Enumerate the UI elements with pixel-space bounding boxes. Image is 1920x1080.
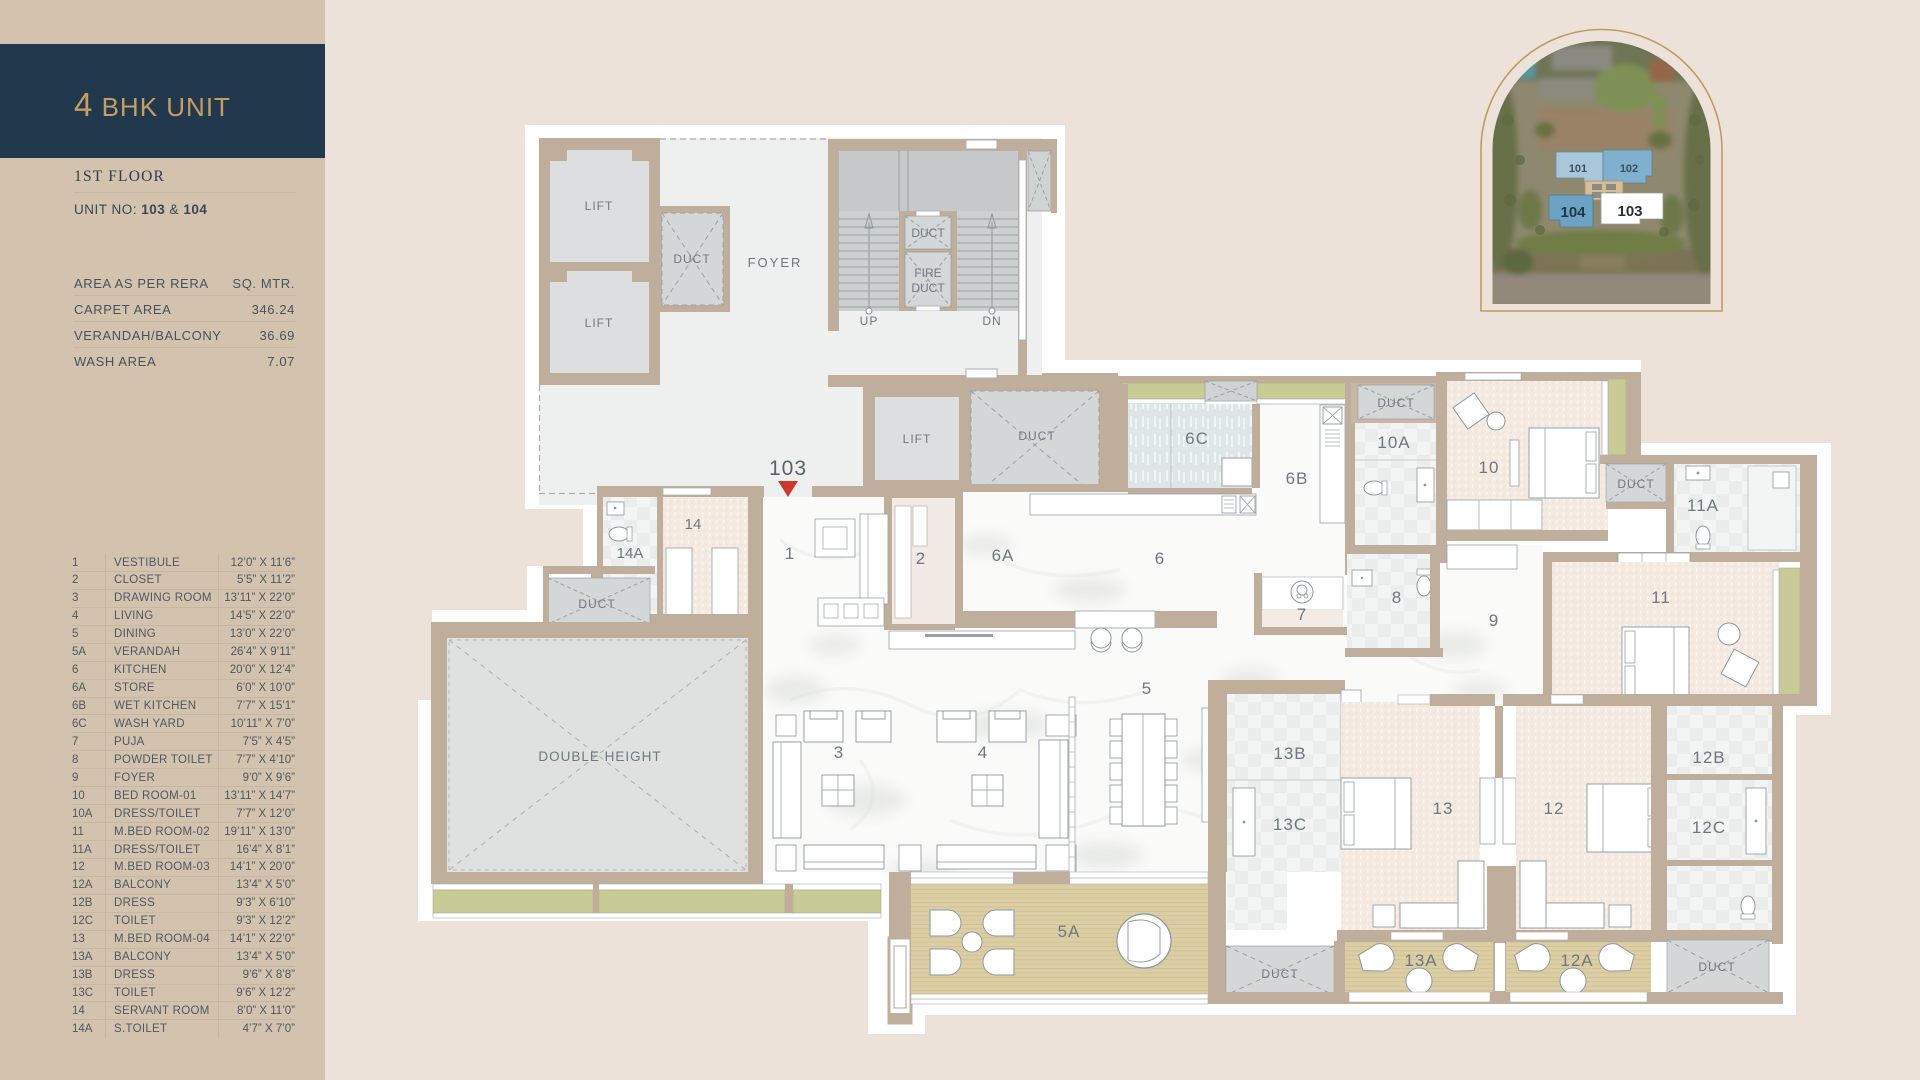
svg-text:LIFT: LIFT [585,199,614,213]
svg-text:DUCT: DUCT [1698,960,1735,974]
svg-text:103: 103 [769,457,807,480]
svg-text:DN: DN [982,314,1001,328]
svg-text:7: 7 [1297,605,1307,624]
svg-text:UP: UP [860,314,879,328]
svg-text:13B: 13B [1273,744,1306,763]
svg-text:6A: 6A [992,546,1015,565]
svg-text:FIRE: FIRE [914,266,941,280]
svg-text:DUCT: DUCT [1261,967,1298,981]
svg-text:8: 8 [1392,588,1402,607]
svg-text:DUCT: DUCT [1617,477,1654,491]
svg-text:2: 2 [916,549,926,568]
svg-text:3: 3 [834,743,844,762]
svg-text:11: 11 [1651,588,1671,607]
svg-text:DOUBLE HEIGHT: DOUBLE HEIGHT [538,749,661,764]
svg-text:12B: 12B [1692,748,1725,767]
svg-text:DUCT: DUCT [1018,429,1055,443]
svg-text:14A: 14A [617,545,644,562]
svg-text:101: 101 [1569,163,1587,175]
svg-text:5A: 5A [1058,922,1081,941]
svg-text:DUCT: DUCT [1377,396,1414,410]
svg-text:6C: 6C [1185,429,1209,448]
svg-text:12: 12 [1544,799,1565,818]
svg-text:10A: 10A [1377,433,1410,452]
svg-text:13C: 13C [1273,815,1307,834]
svg-text:DUCT: DUCT [911,281,945,295]
svg-text:103: 103 [1617,203,1642,220]
svg-text:13A: 13A [1404,951,1437,970]
svg-text:14: 14 [685,516,702,533]
svg-text:LIFT: LIFT [585,316,614,330]
svg-text:12C: 12C [1692,818,1726,837]
svg-text:6B: 6B [1286,469,1309,488]
svg-text:11A: 11A [1687,496,1719,515]
svg-text:5: 5 [1142,679,1152,698]
svg-text:1: 1 [785,544,795,563]
svg-text:12A: 12A [1560,951,1593,970]
svg-text:DUCT: DUCT [911,226,945,240]
svg-text:104: 104 [1560,204,1586,221]
svg-text:13: 13 [1433,799,1454,818]
svg-text:4: 4 [978,743,988,762]
svg-text:10: 10 [1479,458,1500,477]
svg-text:LIFT: LIFT [903,432,932,446]
svg-text:DUCT: DUCT [578,597,615,611]
svg-text:6: 6 [1155,549,1165,568]
svg-text:102: 102 [1620,163,1638,175]
svg-text:9: 9 [1489,611,1499,630]
svg-text:FOYER: FOYER [748,255,803,270]
svg-text:DUCT: DUCT [673,252,710,266]
